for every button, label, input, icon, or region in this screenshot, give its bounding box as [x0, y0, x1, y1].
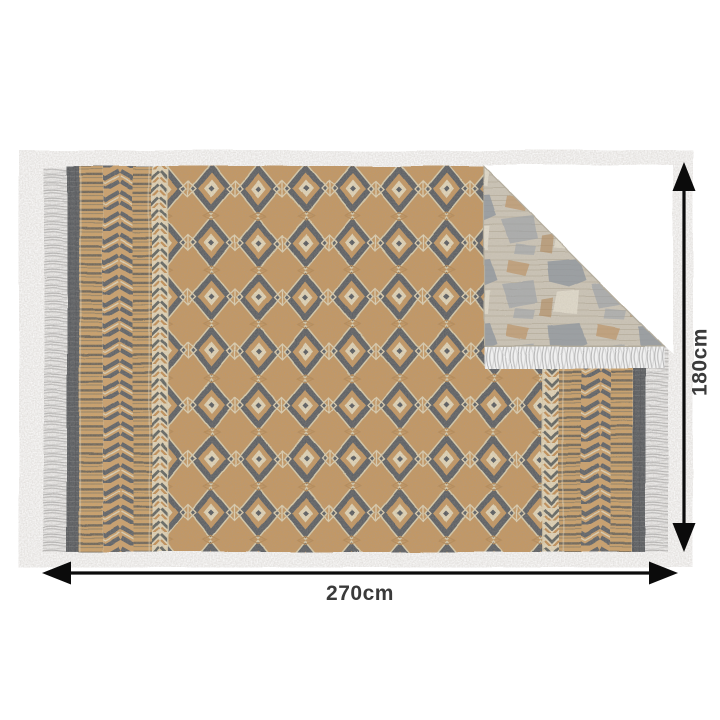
rug-illustration [0, 0, 720, 720]
arrow-left-icon [42, 562, 71, 585]
arrow-up-icon [673, 162, 696, 191]
dimension-diagram: 270cm 180cm [0, 0, 720, 720]
rug [44, 165, 673, 552]
width-dimension-label: 270cm [42, 583, 678, 604]
height-dimension-label: 180cm [690, 328, 711, 396]
arrow-right-icon [649, 562, 678, 585]
fold-fringe [484, 347, 664, 369]
arrow-down-icon [673, 523, 696, 552]
